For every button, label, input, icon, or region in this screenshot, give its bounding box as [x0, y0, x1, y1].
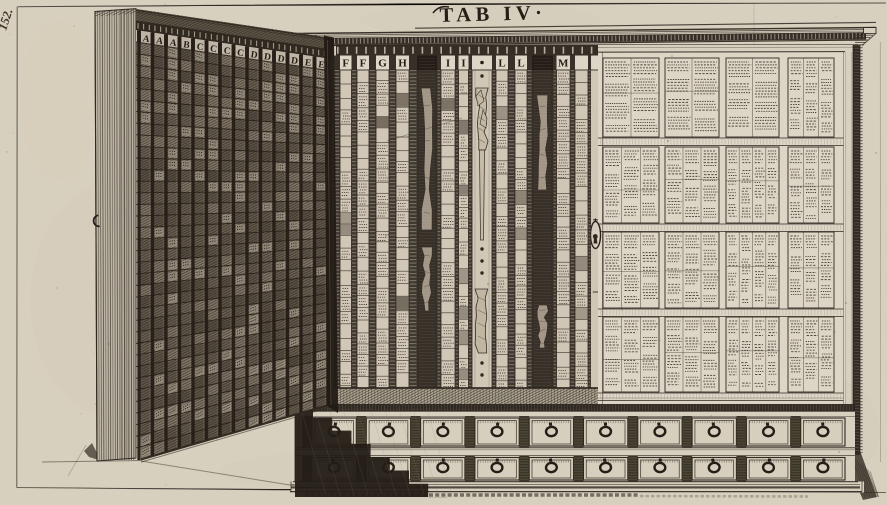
svg-text:H: H: [398, 58, 407, 70]
svg-text:F: F: [342, 58, 349, 70]
svg-text:TAB IV·: TAB IV·: [439, 2, 546, 27]
svg-text:I: I: [461, 58, 465, 70]
svg-text:G: G: [378, 58, 387, 70]
svg-text:L: L: [498, 58, 505, 70]
svg-text:F: F: [360, 58, 367, 70]
svg-text:L: L: [517, 58, 524, 70]
svg-text:M: M: [558, 58, 569, 70]
svg-text:I: I: [446, 58, 450, 70]
